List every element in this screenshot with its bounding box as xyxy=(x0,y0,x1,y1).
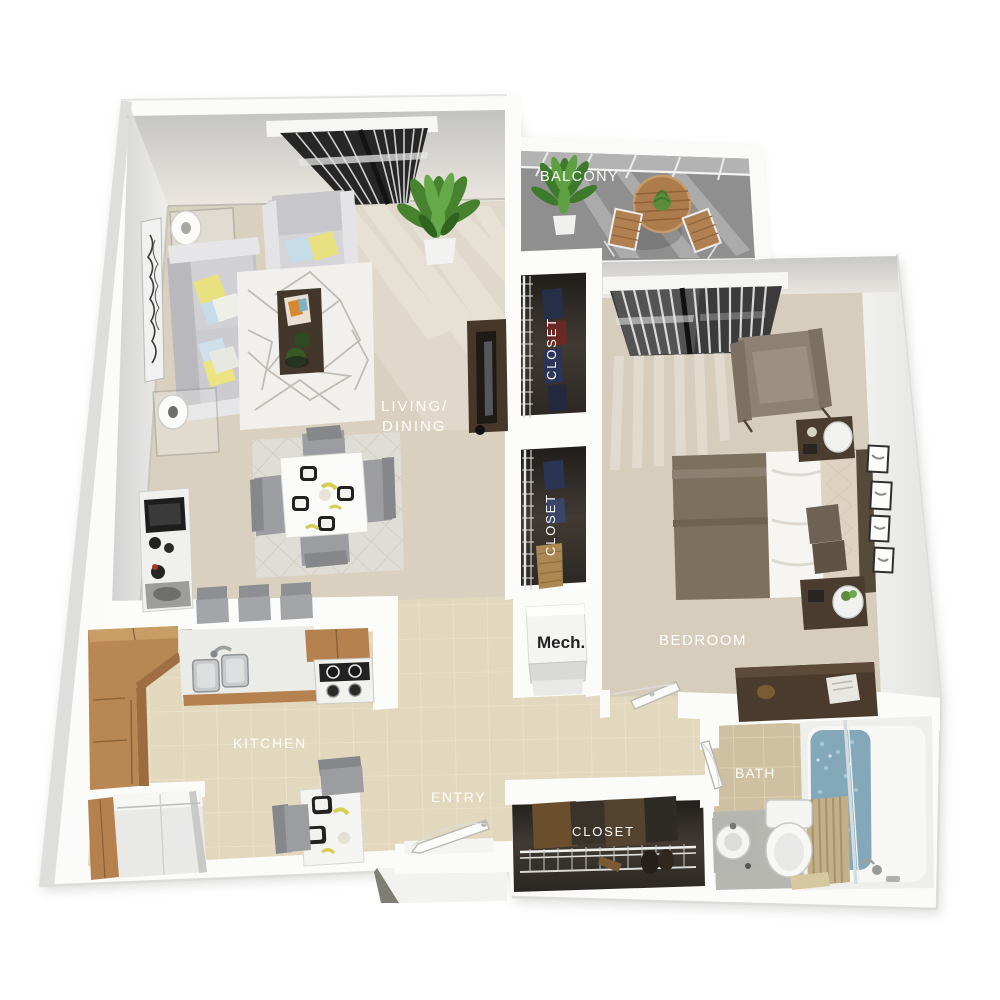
svg-text:CLOSET: CLOSET xyxy=(543,493,558,556)
svg-text:LIVING/: LIVING/ xyxy=(381,398,448,415)
svg-text:KITCHEN: KITCHEN xyxy=(233,735,307,751)
svg-text:CLOSET: CLOSET xyxy=(544,317,559,380)
svg-text:BATH: BATH xyxy=(735,765,775,781)
svg-text:ENTRY: ENTRY xyxy=(431,789,486,805)
svg-text:BEDROOM: BEDROOM xyxy=(659,632,747,649)
svg-text:Mech.: Mech. xyxy=(537,633,585,652)
svg-text:BALCONY: BALCONY xyxy=(540,169,619,185)
svg-text:CLOSET: CLOSET xyxy=(572,824,635,839)
svg-text:DINING: DINING xyxy=(382,418,447,435)
